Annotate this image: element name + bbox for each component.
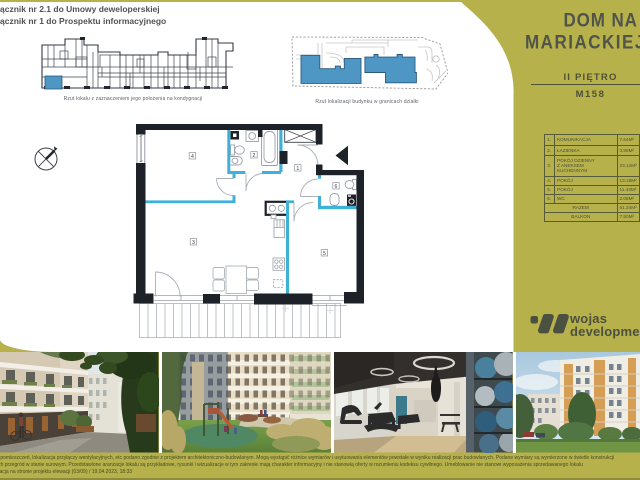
svg-text:6: 6 <box>335 184 338 190</box>
svg-text:4: 4 <box>191 154 194 160</box>
svg-text:3: 3 <box>192 240 195 246</box>
svg-text:1: 1 <box>296 166 299 172</box>
svg-text:2: 2 <box>253 153 256 159</box>
svg-text:5: 5 <box>323 251 326 257</box>
